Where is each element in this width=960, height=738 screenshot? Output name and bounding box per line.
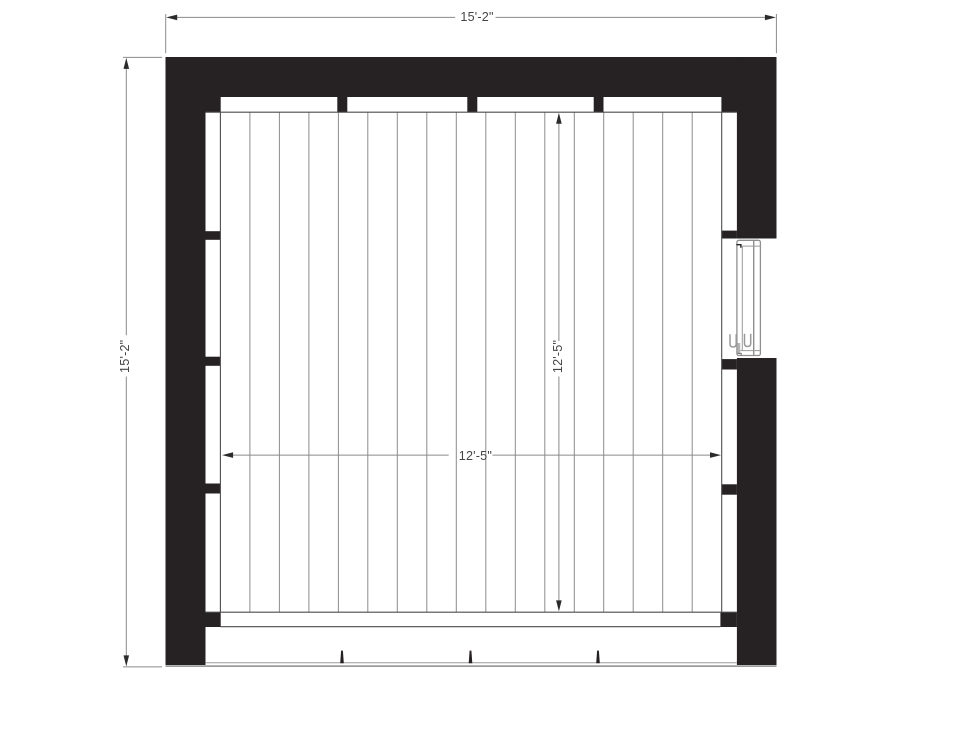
svg-text:15'-2": 15'-2" — [460, 10, 493, 24]
svg-text:15'-2": 15'-2" — [118, 340, 132, 373]
svg-text:12'-5": 12'-5" — [459, 449, 492, 463]
svg-text:12'-5": 12'-5" — [551, 340, 565, 373]
